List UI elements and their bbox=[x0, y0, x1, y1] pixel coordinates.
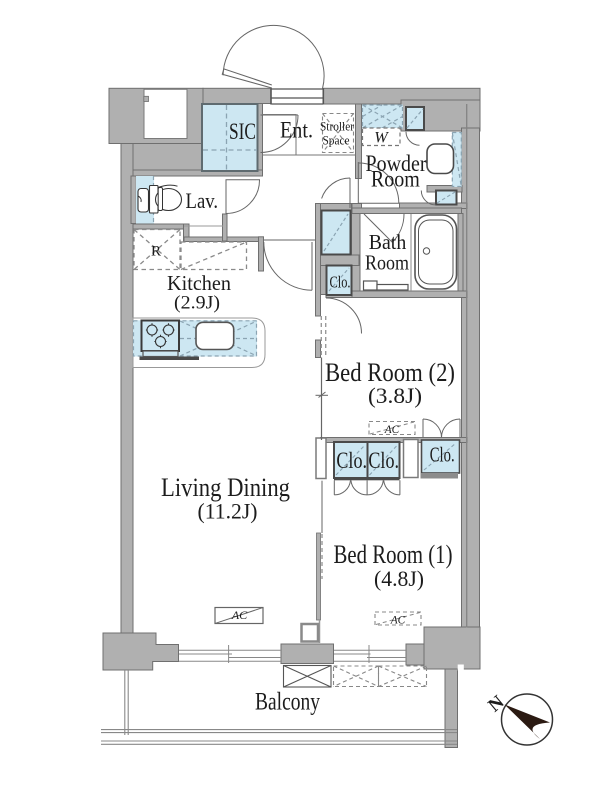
svg-text:R: R bbox=[151, 244, 161, 260]
svg-text:Ent.: Ent. bbox=[280, 118, 313, 143]
svg-text:Space: Space bbox=[323, 134, 350, 148]
svg-text:AC: AC bbox=[384, 424, 400, 436]
svg-text:Clo.: Clo. bbox=[330, 273, 351, 292]
svg-text:Balcony: Balcony bbox=[255, 689, 320, 716]
svg-text:Room: Room bbox=[365, 251, 409, 275]
svg-text:Clo.: Clo. bbox=[368, 448, 399, 473]
svg-text:AC: AC bbox=[390, 615, 406, 627]
svg-text:Room: Room bbox=[371, 166, 420, 191]
svg-text:Lav.: Lav. bbox=[186, 188, 219, 213]
svg-text:Stroller: Stroller bbox=[320, 120, 355, 134]
svg-text:AC: AC bbox=[231, 608, 249, 622]
svg-text:Bed Room (1): Bed Room (1) bbox=[334, 540, 453, 569]
svg-text:Clo.: Clo. bbox=[430, 443, 455, 467]
svg-text:(2.9J): (2.9J) bbox=[174, 293, 220, 314]
svg-text:(4.8J): (4.8J) bbox=[374, 566, 424, 591]
svg-text:(11.2J): (11.2J) bbox=[198, 499, 258, 524]
svg-text:SIC: SIC bbox=[229, 119, 256, 144]
svg-text:Clo.: Clo. bbox=[336, 448, 367, 473]
svg-text:Kitchen: Kitchen bbox=[167, 271, 231, 295]
svg-text:W: W bbox=[374, 130, 390, 147]
svg-text:(3.8J): (3.8J) bbox=[368, 383, 422, 408]
